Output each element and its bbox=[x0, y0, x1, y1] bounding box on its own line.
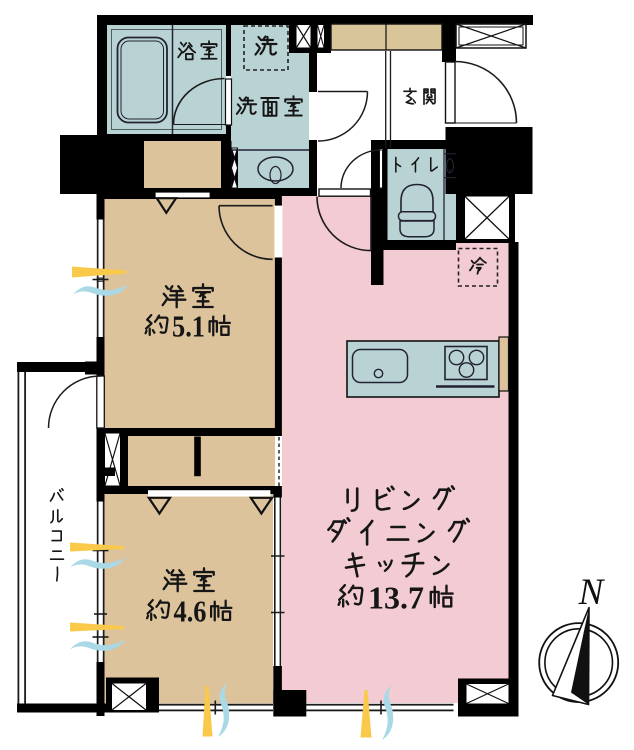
svg-text:5.1: 5.1 bbox=[172, 309, 205, 344]
svg-text:13.7: 13.7 bbox=[368, 580, 424, 616]
svg-text:N: N bbox=[578, 572, 606, 613]
svg-text:4.6: 4.6 bbox=[174, 594, 207, 629]
